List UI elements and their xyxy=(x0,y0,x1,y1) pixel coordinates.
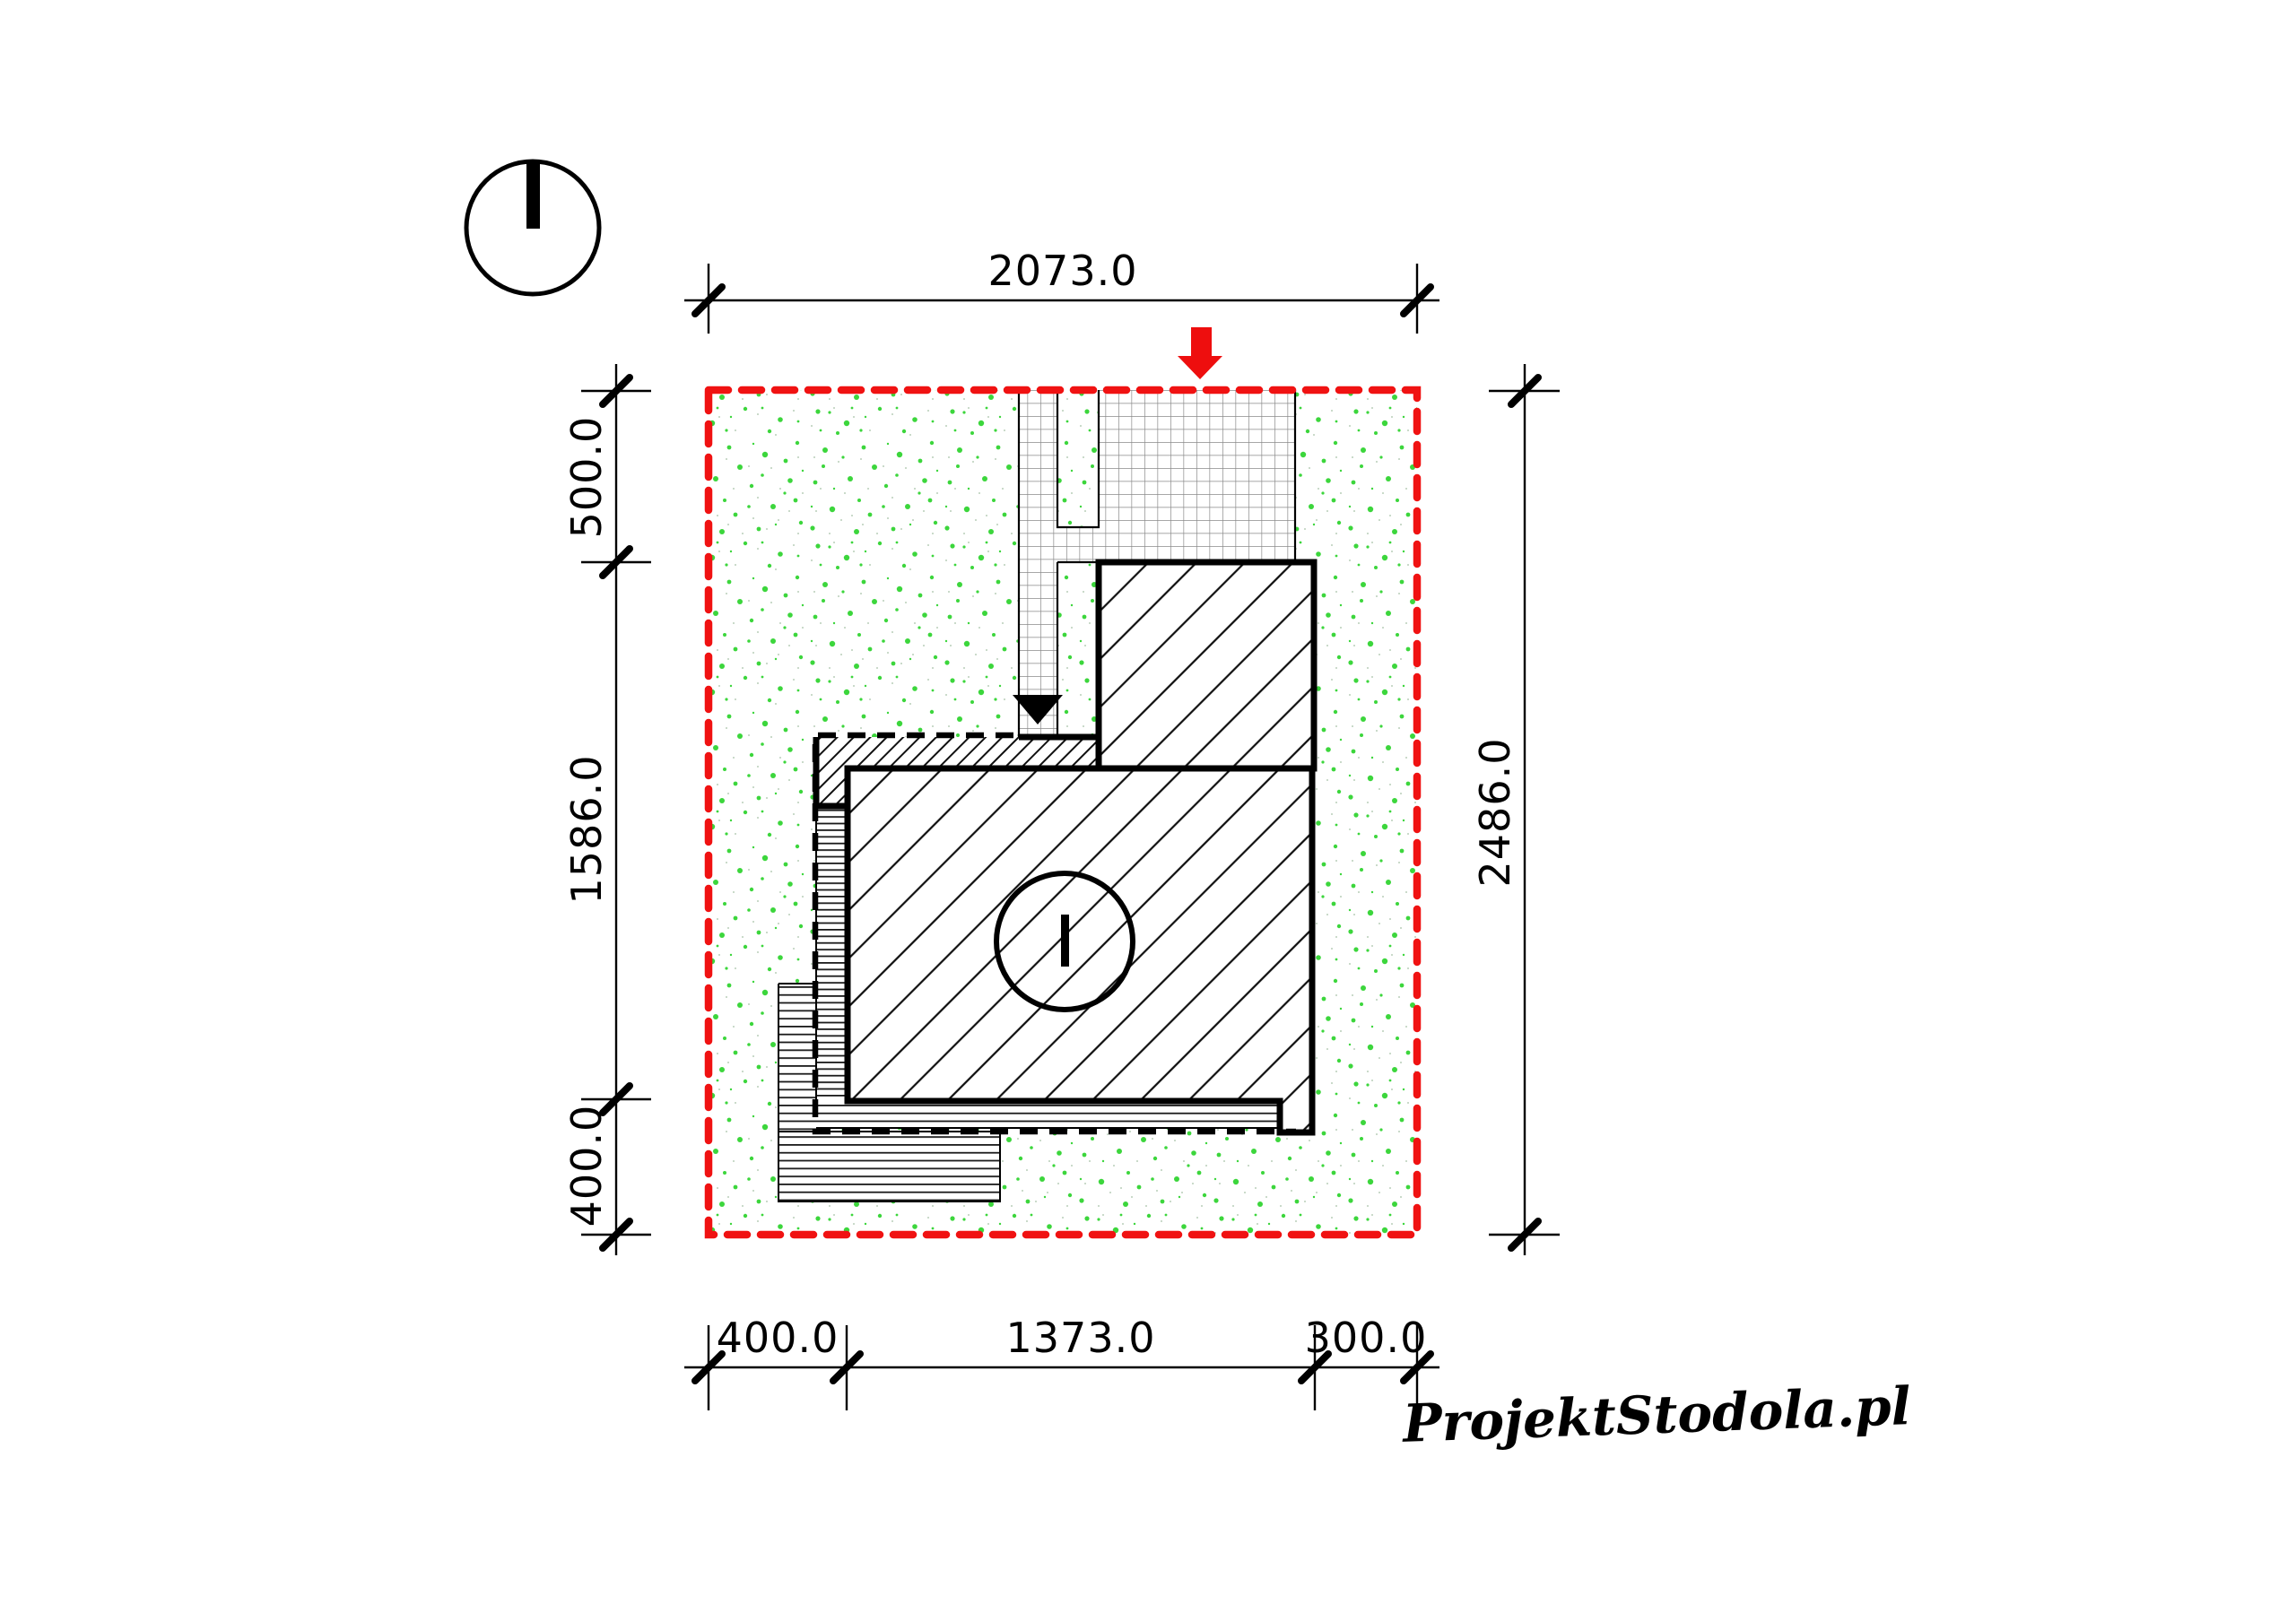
driveway-paving xyxy=(1099,390,1295,562)
site-plan-drawing: 2073.0 400.0 1373.0 300.0 500.0 1586.0 4… xyxy=(0,0,2296,1622)
dim-label-bottom-center: 1373.0 xyxy=(1006,1314,1156,1362)
terrace-slab xyxy=(778,1132,1000,1201)
dim-label-right: 2486.0 xyxy=(1471,738,1519,888)
dim-label-top: 2073.0 xyxy=(988,247,1138,295)
dim-label-bottom-right: 300.0 xyxy=(1305,1314,1428,1362)
dim-label-left-top: 500.0 xyxy=(562,416,611,539)
dim-label-left-bottom: 400.0 xyxy=(562,1105,611,1227)
site-plan-page: 2073.0 400.0 1373.0 300.0 500.0 1586.0 4… xyxy=(0,0,2296,1622)
dim-label-bottom-left: 400.0 xyxy=(717,1314,839,1362)
walkway-connector-paving xyxy=(1057,527,1099,562)
stairs-strip xyxy=(816,806,848,1101)
south-deck-band xyxy=(816,1101,1280,1128)
walkway-paving xyxy=(1019,390,1057,740)
dim-label-left-middle: 1586.0 xyxy=(562,755,611,905)
garage-footprint xyxy=(1099,562,1314,768)
house-footprint xyxy=(848,768,1312,1132)
